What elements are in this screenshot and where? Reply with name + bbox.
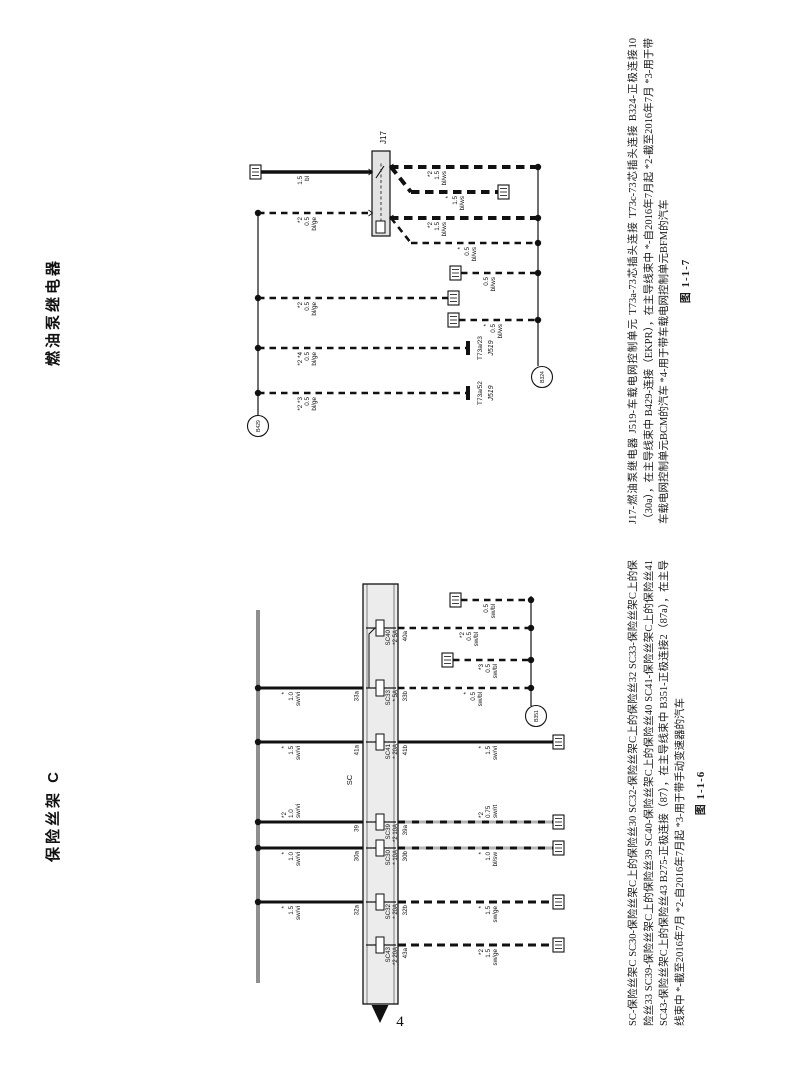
svg-text:T73a/23: T73a/23 <box>477 336 484 360</box>
relay-diagram-caption: J17-燃油泵继电器 J519-车载电网控制单元 T73a-73芯插头连接 T7… <box>626 38 694 524</box>
relay-caption-text: J17-燃油泵继电器 J519-车载电网控制单元 T73a-73芯插头连接 T7… <box>626 38 673 524</box>
svg-text:1.5: 1.5 <box>452 196 459 205</box>
svg-text:1.5: 1.5 <box>434 171 441 180</box>
svg-text:bl/ws: bl/ws <box>459 196 466 210</box>
svg-text:*2: *2 <box>427 222 434 228</box>
svg-text:J17: J17 <box>379 131 388 144</box>
svg-text:1.5: 1.5 <box>434 222 441 231</box>
svg-text:J519: J519 <box>488 340 495 356</box>
svg-text:bl/ws: bl/ws <box>471 247 478 261</box>
svg-text:B429: B429 <box>256 420 262 432</box>
svg-text:*2 *4: *2 *4 <box>297 352 304 366</box>
svg-text:bl/ws: bl/ws <box>497 324 504 338</box>
fuse-figure-label: 图 1-1-6 <box>694 560 710 1026</box>
fuse-diagram-caption: SC-保险丝架C SC30-保险丝架C上的保险丝30 SC32-保险丝架C上的保… <box>626 560 710 1026</box>
svg-text:bl/ge: bl/ge <box>311 352 318 366</box>
svg-text:bl/ge: bl/ge <box>311 217 318 231</box>
svg-text:B324: B324 <box>540 371 546 383</box>
svg-text:*2: *2 <box>297 217 304 223</box>
rotated-sheet: 保险丝架 C 燃油泵继电器 *1.5sw/vi*1.0sw/vi*21.0sw/… <box>40 30 730 1030</box>
svg-text:T73a/52: T73a/52 <box>477 381 484 405</box>
svg-text:0.5: 0.5 <box>483 277 490 286</box>
svg-text:*2: *2 <box>427 171 434 177</box>
svg-text:*2: *2 <box>297 302 304 308</box>
svg-text:bl/ge: bl/ge <box>311 302 318 316</box>
page-number: 4 <box>0 1014 800 1031</box>
svg-text:0.5: 0.5 <box>304 352 311 361</box>
svg-text:0.5: 0.5 <box>304 217 311 226</box>
svg-text:bl: bl <box>304 176 311 181</box>
svg-text:*2 *3: *2 *3 <box>297 397 304 411</box>
svg-text:0.5: 0.5 <box>490 324 497 333</box>
svg-text:bl/ge: bl/ge <box>311 397 318 411</box>
svg-text:*: * <box>483 323 490 326</box>
fuse-caption-text: SC-保险丝架C SC30-保险丝架C上的保险丝30 SC32-保险丝架C上的保… <box>626 560 688 1026</box>
svg-text:*: * <box>457 246 464 249</box>
svg-text:0.5: 0.5 <box>304 397 311 406</box>
svg-text:1.5: 1.5 <box>297 176 304 185</box>
svg-text:*: * <box>445 195 452 198</box>
svg-text:J519: J519 <box>488 385 495 401</box>
svg-text:bl/ws: bl/ws <box>490 277 497 291</box>
svg-text:bl/ws: bl/ws <box>441 222 448 236</box>
svg-text:0.5: 0.5 <box>304 302 311 311</box>
relay-figure-label: 图 1-1-7 <box>679 38 695 524</box>
svg-text:0.5: 0.5 <box>464 247 471 256</box>
manual-page: { "page": { "number": "4" }, "figures": … <box>0 0 800 1078</box>
svg-text:bl/ws: bl/ws <box>441 171 448 185</box>
